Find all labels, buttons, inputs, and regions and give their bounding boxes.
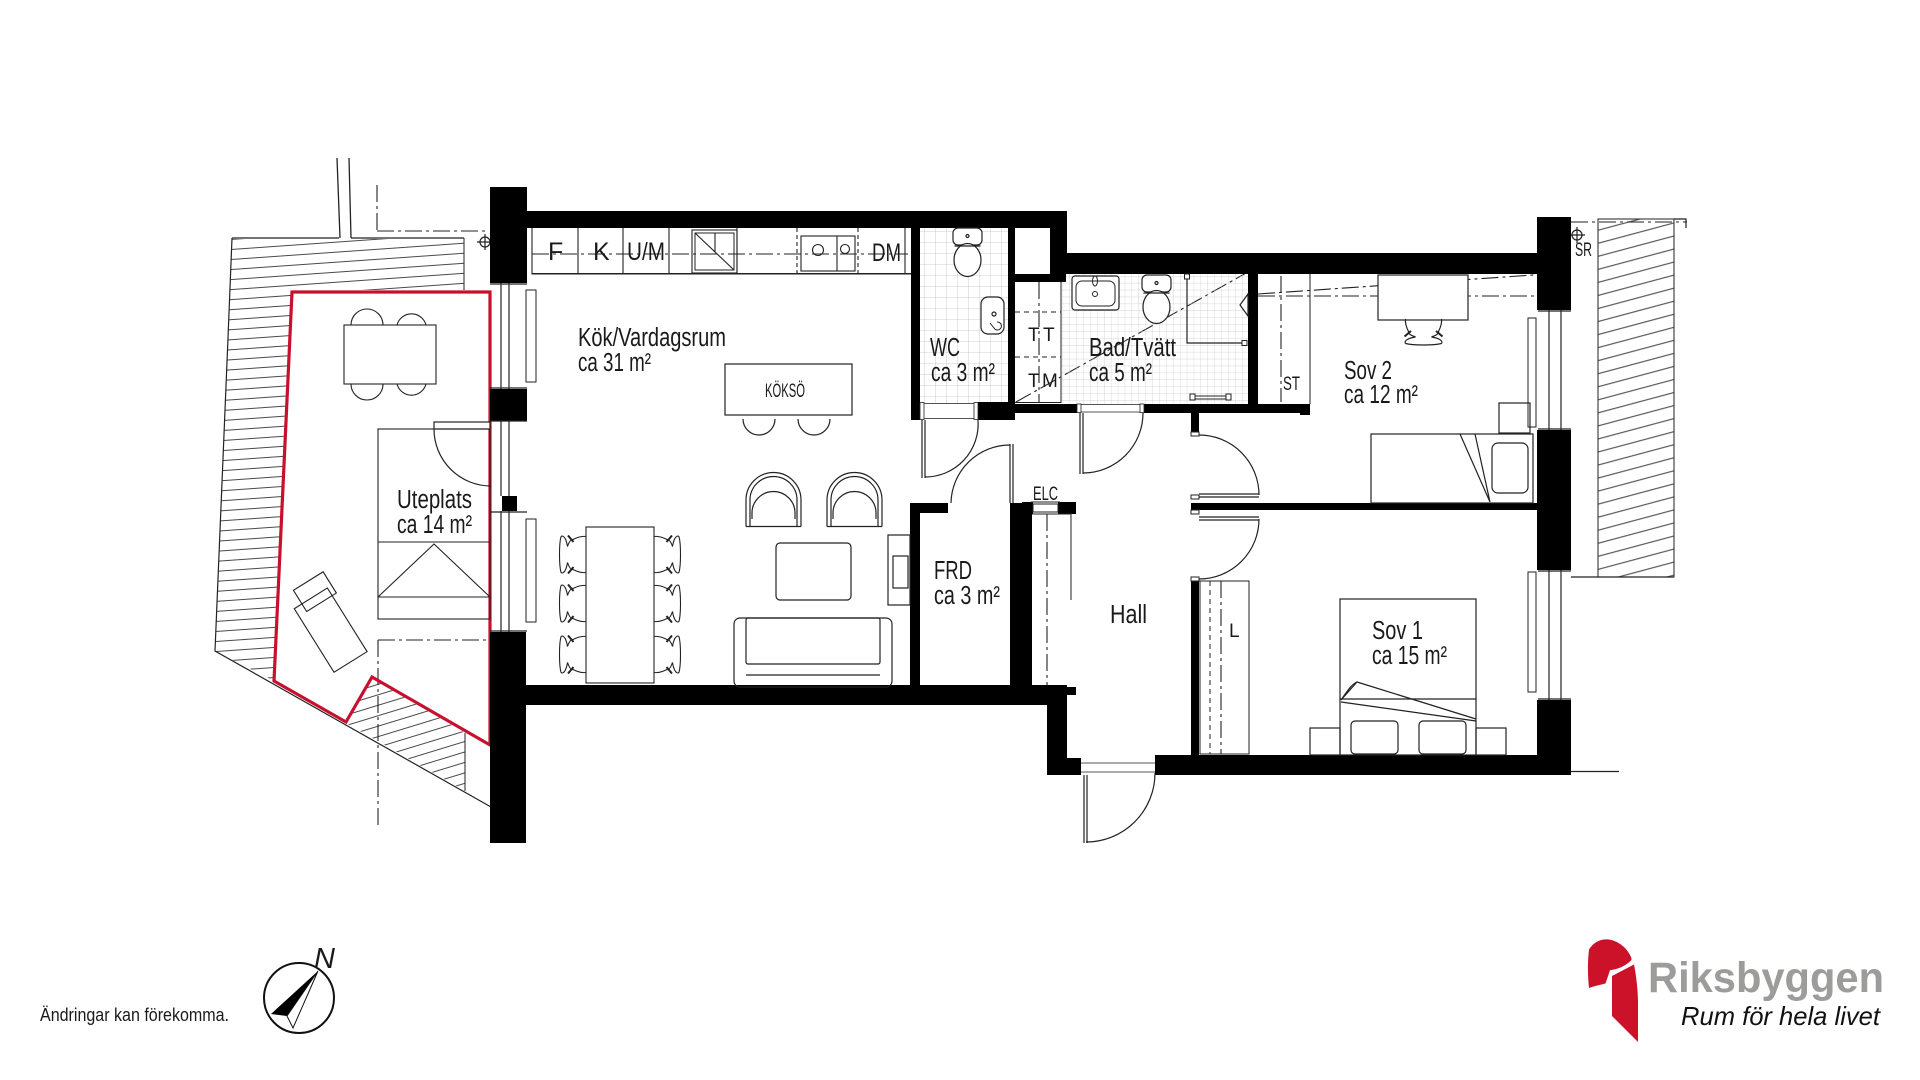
svg-text:WC: WC [930,334,960,362]
svg-text:Riksbyggen: Riksbyggen [1648,955,1884,1002]
svg-text:L: L [1229,621,1240,642]
svg-text:Hall: Hall [1110,601,1147,629]
svg-text:ST: ST [1283,374,1300,395]
svg-text:ca 12 m²: ca 12 m² [1344,381,1418,409]
svg-text:F: F [548,238,563,266]
svg-text:N: N [314,943,335,975]
svg-text:Uteplats: Uteplats [397,486,472,514]
svg-text:Ändringar kan förekomma.: Ändringar kan förekomma. [40,1004,229,1025]
svg-text:Bad/Tvätt: Bad/Tvätt [1089,334,1176,362]
svg-text:T: T [1043,325,1055,346]
svg-text:T: T [1028,325,1040,346]
svg-text:T: T [1028,371,1040,392]
svg-text:ca 15 m²: ca 15 m² [1372,642,1447,670]
svg-text:FRD: FRD [934,557,972,585]
svg-text:M: M [1042,371,1058,392]
svg-text:DM: DM [872,239,901,267]
svg-text:ca 14 m²: ca 14 m² [397,511,472,539]
svg-text:U/M: U/M [627,238,665,266]
svg-text:Kök/Vardagsrum: Kök/Vardagsrum [578,324,726,352]
svg-text:ca 3 m²: ca 3 m² [931,359,995,387]
svg-text:ca 3 m²: ca 3 m² [934,582,1000,610]
svg-text:Sov 1: Sov 1 [1372,617,1423,645]
svg-text:Rum för hela livet: Rum för hela livet [1681,1001,1882,1031]
svg-text:KÖKSÖ: KÖKSÖ [765,381,805,402]
svg-text:SR: SR [1575,240,1592,261]
svg-text:ca 5 m²: ca 5 m² [1089,359,1152,387]
svg-text:K: K [593,238,610,266]
svg-text:ca 31 m²: ca 31 m² [578,349,651,377]
